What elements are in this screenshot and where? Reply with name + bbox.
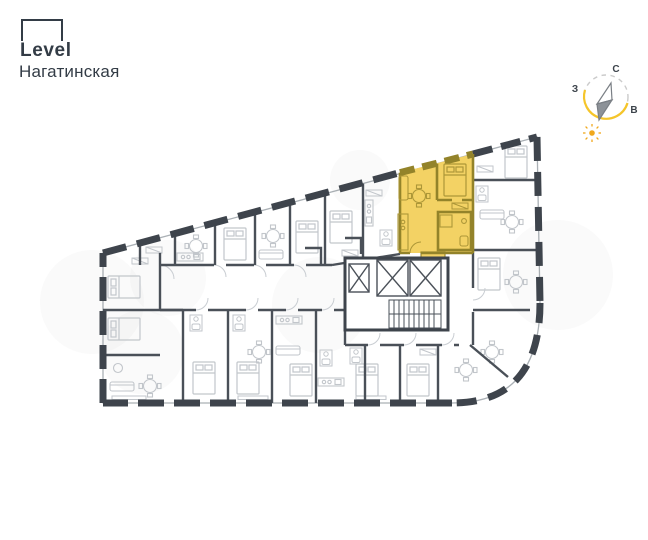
compass-east-label: В: [630, 105, 637, 116]
compass-west-label: З: [572, 84, 578, 95]
compass-rose-icon: С З В: [572, 64, 638, 120]
compass-needle-icon: [597, 83, 612, 120]
compass-north-label: С: [612, 64, 619, 75]
sun-icon: [583, 124, 601, 142]
elevator-core: [345, 258, 448, 330]
floorplan-image[interactable]: С З В: [0, 0, 648, 540]
